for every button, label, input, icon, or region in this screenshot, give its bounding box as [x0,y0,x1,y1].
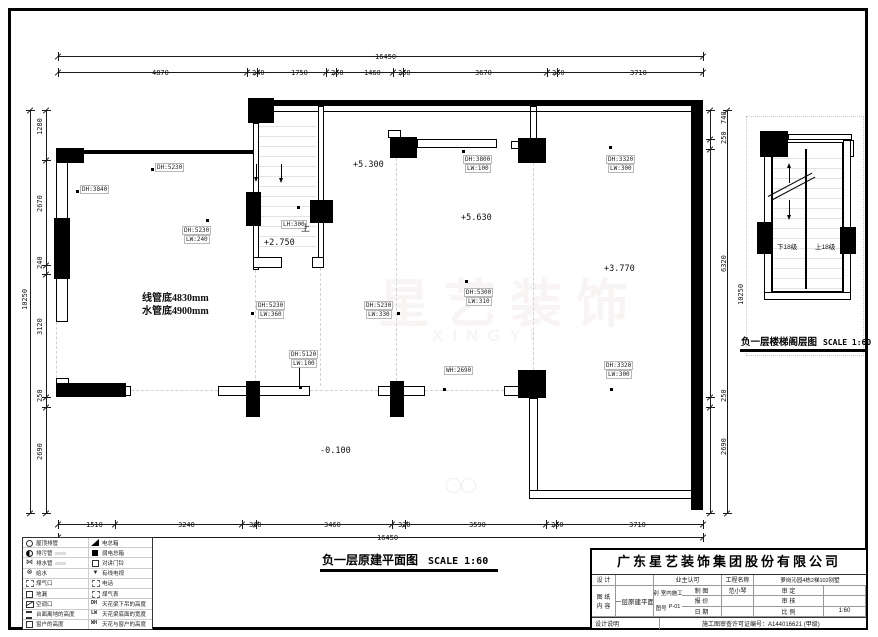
wall-solid [253,100,703,106]
plan-annotation: +2.750 [264,238,295,248]
legend-item-label: 台面离地的高度 [36,610,88,618]
plan-annotation: LW:360 [258,310,284,319]
title-block-grid: 设 计 业主认可 工程名称 萝岗沁园4栋2梯102别墅 制 图 范小琴 审 定 … [592,575,866,617]
wall-hollow [764,140,772,298]
legend-slope-icon [91,539,100,547]
legend-row: 窗户的高度WH天花与窗户的高度 [23,620,152,629]
tb-permit: 施工图审查许可证编号：A144016621 (甲级) [660,619,866,628]
legend-row: 台面离地的高度LW天花梁底面的宽度 [23,610,152,620]
grid-guide-line [255,270,256,383]
title-block: 广东星艺装饰集团股份有限公司 设 计 业主认可 工程名称 萝岗沁园4栋2梯102… [590,548,868,630]
legend-DH-icon: DH [91,600,100,608]
stair-treads [259,117,316,255]
legend-fine-print [55,552,66,555]
tb-no-row: 图号 P-01 [656,604,681,612]
annotation-dot [397,312,400,315]
wall-line [299,366,300,386]
legend-row: 煤气口电话 [23,579,152,589]
annotation-dot [465,280,468,283]
legend-row: 屋顶排管电总箱 [23,538,152,548]
legend-tri-icon: ▼ [91,569,100,577]
tb-cat-no-cell: 图别 室内施工图 图号 P-01 [654,586,682,618]
legend-item-label: 对讲门铃 [102,559,152,567]
plan-annotation: WH:2690 [444,366,473,375]
legend-item-label: 电总箱 [102,539,152,547]
plan-annotation: 水管底4900mm [142,302,209,317]
plan-annotation: LW:100 [291,359,317,368]
plan-annotation: DH:5230 [256,301,285,310]
grid-guide-line [131,390,218,391]
wall-solid [310,200,333,223]
legend-table: 屋顶排管电总箱排污管弱电总箱⋈排水管对讲门铃⊗给水▼有线电视煤气口电话地漏煤气表… [22,537,153,630]
stair-arrow-head [279,178,283,183]
plan-annotation: LW:240 [184,235,210,244]
legend-osq-icon [25,590,34,598]
tb-label-quote: 报 价 [682,596,722,607]
plan-annotation: LW:330 [366,310,392,319]
dimension-line [46,110,47,513]
legend-icon-cell [88,548,102,557]
wall-solid [840,227,856,254]
tb-label-sheet: 图 纸 内 容 [592,586,616,618]
legend-item-label: 窗户的高度 [36,620,88,628]
plan-annotation: -0.100 [320,446,351,456]
tb-value-content: 负一层原建平面图 [616,586,654,618]
stair-direction-arrow [256,164,257,177]
legend-icon-cell: LW [88,610,102,619]
plan-annotation: +5.300 [353,160,384,170]
wall-hollow [529,490,697,499]
annotation-dot [609,146,612,149]
legend-item-label: 给水 [36,569,88,577]
tb-value-draft: 范小琴 [722,586,754,597]
legend-item-label: 排污管 [36,549,88,557]
legend-icon-cell: ▼ [88,569,102,578]
wall-solid [246,381,260,417]
plan-annotation: LW:300 [608,164,634,173]
wall-hollow [318,106,324,258]
legend-bow-icon: ⋈ [25,559,34,567]
wall-solid [691,100,703,510]
legend-item-label: 排水管 [36,559,88,567]
legend-item-label: 电话 [102,579,152,587]
legend-xcirc-icon: ⊗ [25,569,34,577]
tb-label-audit: 审 核 [754,596,824,607]
stair-plan-scale: SCALE 1:60 [823,338,871,347]
legend-icon-cell [23,620,36,628]
legend-osq-icon [91,559,100,567]
legend-icon-cell: DH [88,599,102,608]
tb-label-verify: 审 定 [754,586,824,597]
dimension-line [58,524,703,525]
legend-icon-cell [88,589,102,598]
legend-item-label: 煤气口 [36,579,88,587]
plan-annotation: 上18级 [815,241,835,251]
plan-annotation: DH:3840 [80,185,109,194]
wall-hollow [218,386,310,396]
wall-solid [54,218,70,279]
dimension-line [710,110,711,513]
stair-plan-title-text: 负一层楼梯阁层图 [741,337,817,348]
legend-dsq-icon [25,579,34,587]
legend-item-label: 煤气表 [102,590,152,598]
plan-annotation: DH:5230 [182,226,211,235]
legend-item-label: 天花梁底面的宽度 [102,610,152,618]
annotation-dot [206,219,209,222]
tb-label-note: 设计说明 [592,618,660,629]
company-name: 广东星艺装饰集团股份有限公司 [592,550,866,575]
wall-line [323,111,691,112]
legend-icon-cell: ⋈ [23,559,36,567]
wall-hollow [504,386,519,396]
legend-icon-cell [23,600,36,608]
legend-icon-cell [23,549,36,557]
grid-guide-line [396,158,397,381]
annotation-dot [297,206,300,209]
wall-solid [56,150,253,154]
tb-label-scale: 比 例 [754,607,824,618]
tb-value-design [616,575,654,586]
legend-item-label: 天花梁下吊的高度 [102,600,152,608]
legend-item-label: 地漏 [36,590,88,598]
grid-guide-line [533,163,534,370]
plan-annotation: +5.630 [461,213,492,223]
wall-solid [390,381,404,417]
main-title-underline [320,569,498,572]
tb-label-design: 设 计 [592,575,616,586]
annotation-dot [610,388,613,391]
legend-row: 地漏煤气表 [23,589,152,599]
stair-arrow-head [254,177,258,182]
dimension-line [30,110,31,513]
plan-annotation: DH:5230 [364,301,393,310]
tb-value-verify [824,586,866,597]
wall-solid [757,222,772,254]
legend-WH-icon: WH [91,620,100,628]
tb-value-audit [824,596,866,607]
tb-label-cat: 图别 [654,589,659,597]
tb-label-sheet-1: 图 纸 [597,592,611,601]
wall-line [805,149,807,289]
dimension-line [727,110,728,513]
plan-annotation: DH:5300 [464,288,493,297]
stair-title-underline [740,349,866,352]
main-plan-title: 负一层原建平面图SCALE 1:60 [322,551,488,568]
legend-item-label: 空调口 [36,600,88,608]
legend-sq-icon [91,549,100,557]
tb-value-scale: 1:60 [824,607,866,618]
wall-hollow [764,292,851,300]
tb-value-no: P-01 [669,604,681,612]
annotation-dot [251,312,254,315]
grid-guide-line [56,322,57,383]
legend-LW-icon: LW [91,610,100,618]
legend-item-label: 屋顶排管 [36,539,88,547]
main-plan-scale: SCALE 1:60 [428,556,488,567]
legend-row: 排污管弱电总箱 [23,548,152,558]
legend-icon-cell [23,610,36,618]
tb-label-project: 工程名称 [722,575,754,586]
plan-annotation: DH:3320 [604,361,633,370]
legend-icon-cell [88,558,102,567]
wall-solid [518,370,546,398]
tb-label-sheet-2: 内 容 [597,601,611,610]
legend-dsq-icon [91,590,100,598]
annotation-dot [151,168,154,171]
legend-icon-cell [23,579,36,587]
tb-cat-row: 图别 室内施工图 [654,589,682,597]
legend-circ-icon [25,539,34,547]
stair-direction-arrow [789,200,790,215]
legend-icon-cell: ⊗ [23,569,36,577]
plan-annotation: DH:5230 [155,163,184,172]
wall-solid [760,131,788,157]
wall-solid [246,192,261,226]
legend-icon-cell [88,579,102,588]
annotation-dot [299,386,302,389]
tb-value-quote [722,596,754,607]
legend-fine-print [55,562,66,565]
tb-label-no: 图号 [656,604,667,612]
stair-arrow-head [787,163,791,168]
drawing-sheet: 星艺装饰 XINGYI DH:5230DH:3840DH:5230LW:240线… [0,0,878,637]
plan-annotation: LW:300 [606,370,632,379]
plan-annotation: DH:5120 [289,350,318,359]
plan-annotation: 下18级 [777,241,797,251]
wall-hollow [312,257,324,268]
legend-icon-cell [23,590,36,598]
legend-bars-icon [25,610,34,618]
tb-value-date [722,607,754,618]
wall-hollow [253,257,282,268]
legend-icon-cell [88,538,102,547]
tb-value-project: 萝岗沁园4栋2梯102别墅 [754,575,866,586]
stair-shaft-outline [772,142,843,292]
plan-annotation: 上 [301,221,310,234]
legend-icon-cell [23,539,36,547]
stair-arrow-head [787,215,791,220]
wall-solid [518,138,546,163]
legend-item-label: 弱电总箱 [102,549,152,557]
tb-label-date: 日 期 [682,607,722,618]
plan-annotation: LW:100 [465,164,491,173]
annotation-dot [443,388,446,391]
legend-dsq-icon [91,579,100,587]
legend-row: 空调口DH天花梁下吊的高度 [23,599,152,609]
tb-label-owner-approve: 业主认可 [654,575,722,586]
legend-icon-cell: WH [88,620,102,629]
plan-annotation: +3.770 [604,264,635,274]
legend-item-label: 天花与窗户的高度 [102,620,152,628]
wall-hollow [529,398,538,494]
main-plan-title-text: 负一层原建平面图 [322,553,418,567]
plan-annotation: DH:3320 [606,155,635,164]
stair-plan-title: 负一层楼梯阁层图SCALE 1:60 [741,334,871,348]
stair-direction-arrow [281,164,282,178]
grid-guide-line [310,390,378,391]
legend-osq-icon [25,620,34,628]
wall-solid [390,137,417,158]
tb-value-cat: 室内施工图 [661,589,682,597]
legend-half-icon [25,549,34,557]
legend-item-label: 有线电视 [102,569,152,577]
annotation-dot [76,190,79,193]
grid-guide-line [425,390,504,391]
plan-annotation: DH:3800 [463,155,492,164]
wall-line [259,111,318,112]
plan-annotation: LW:310 [466,297,492,306]
wall-solid [56,383,126,397]
wall-hollow [843,140,851,298]
grid-guide-line [320,258,321,386]
title-block-footer: 设计说明 施工图审查许可证编号：A144016621 (甲级) [592,617,866,629]
legend-row: ⊗给水▼有线电视 [23,569,152,579]
legend-row: ⋈排水管对讲门铃 [23,558,152,568]
legend-ac-icon [25,600,34,608]
annotation-dot [462,150,465,153]
stair-direction-arrow [789,168,790,183]
wall-hollow [417,139,497,148]
tb-label-draft: 制 图 [682,586,722,597]
